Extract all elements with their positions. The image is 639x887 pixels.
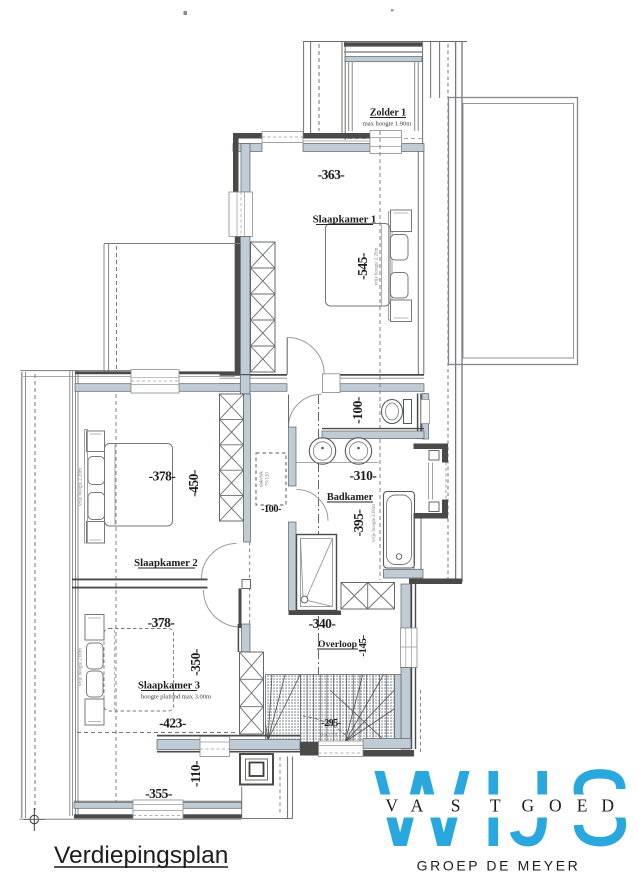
svg-text:D: D	[601, 796, 614, 816]
svg-text:hoogte plafond max 3.00m: hoogte plafond max 3.00m	[141, 694, 211, 701]
svg-text:E: E	[577, 796, 588, 816]
svg-text:-363-: -363-	[318, 167, 345, 182]
svg-text:-545-: -545-	[355, 253, 370, 280]
svg-text:G: G	[521, 796, 534, 816]
svg-text:A: A	[411, 796, 424, 816]
svg-text:-350-: -350-	[188, 649, 203, 676]
svg-text:dakvlak: dakvlak	[260, 471, 265, 487]
svg-text:Slaapkamer 3: Slaapkamer 3	[138, 681, 200, 692]
svg-text:-145-: -145-	[357, 635, 369, 657]
svg-text:-310-: -310-	[350, 468, 377, 483]
svg-text:Slaapkamer 1: Slaapkamer 1	[313, 214, 377, 226]
svg-text:max hoogte 1.90m: max hoogte 1.90m	[363, 121, 412, 128]
svg-text:-378-: -378-	[149, 469, 176, 484]
svg-text:O: O	[549, 796, 562, 816]
svg-text:GROEP DE MEYER: GROEP DE MEYER	[417, 858, 581, 874]
svg-text:-295-: -295-	[321, 718, 340, 729]
svg-text:-100-: -100-	[261, 504, 282, 515]
svg-text:V: V	[385, 796, 398, 816]
svg-text:-355-: -355-	[145, 786, 172, 801]
svg-text:vrije hoogte 2.20m: vrije hoogte 2.20m	[79, 468, 84, 506]
svg-text:T: T	[490, 796, 501, 816]
svg-text:-423-: -423-	[159, 716, 186, 731]
svg-text:vrije hoogte 2.20m: vrije hoogte 2.20m	[375, 247, 380, 285]
svg-text:Overloop: Overloop	[318, 639, 358, 650]
svg-text:-378-: -378-	[148, 615, 175, 630]
svg-text:-110-: -110-	[188, 761, 203, 787]
svg-text:vrije hoogte 2.00m: vrije hoogte 2.00m	[372, 504, 377, 542]
svg-text:Zolder 1: Zolder 1	[370, 108, 406, 119]
svg-text:-340-: -340-	[309, 616, 336, 631]
svg-text:Verdiepingsplan: Verdiepingsplan	[54, 842, 228, 869]
svg-text:-450-: -450-	[186, 470, 201, 497]
svg-text:16x 17.8 - 25: 16x 17.8 - 25	[320, 734, 347, 739]
svg-text:vrije hoogte 2.00m: vrije hoogte 2.00m	[79, 648, 84, 686]
svg-text:75/120: 75/120	[266, 472, 271, 486]
svg-text:Badkamer: Badkamer	[327, 492, 374, 503]
svg-text:-395-: -395-	[351, 510, 366, 537]
svg-text:Slaapkamer 2: Slaapkamer 2	[134, 557, 198, 569]
svg-text:-100-: -100-	[350, 397, 365, 424]
svg-text:S: S	[451, 796, 461, 816]
